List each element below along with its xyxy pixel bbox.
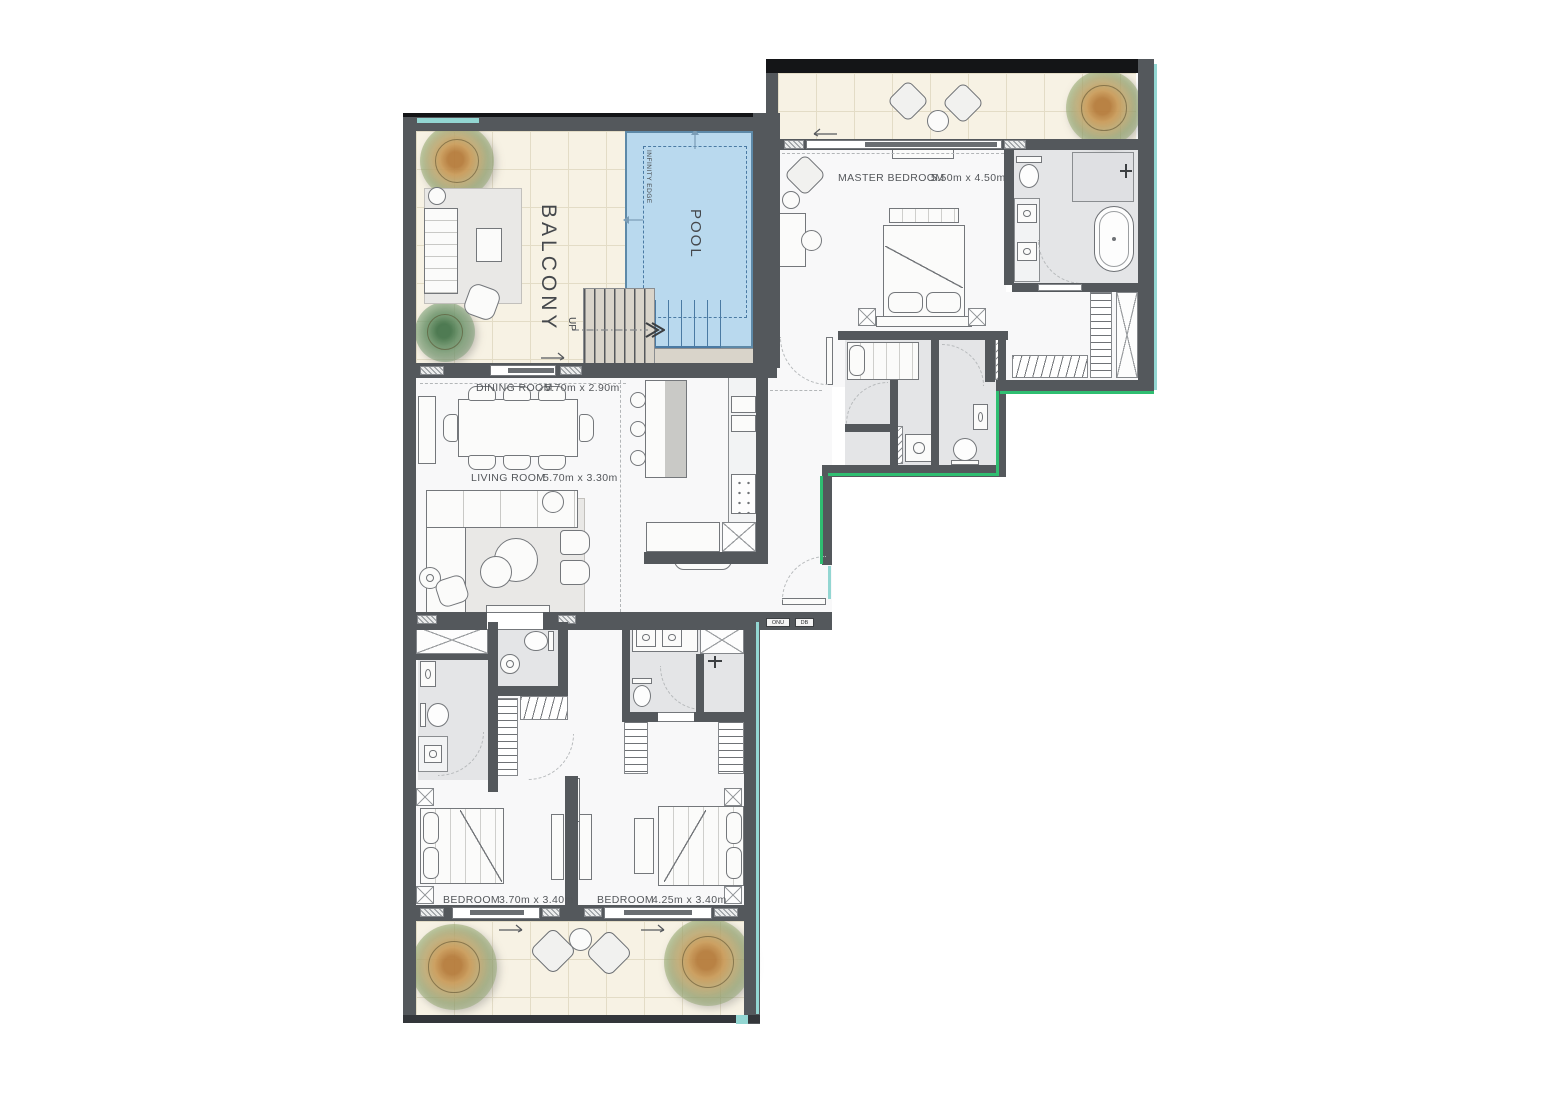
decor-square (416, 788, 434, 806)
door-opening (658, 712, 694, 722)
sink (1017, 204, 1037, 223)
toilet-tank (420, 703, 426, 727)
room-label-balcony: BALCONY (536, 204, 560, 332)
sideboard (418, 396, 436, 464)
utility-box-onu: ONU (766, 618, 790, 627)
wardrobe-rack (718, 714, 744, 774)
wall (998, 340, 1006, 477)
wall (845, 424, 893, 432)
hanging-rack (520, 696, 568, 720)
toilet (524, 631, 548, 651)
sink (662, 628, 682, 647)
armchair (560, 560, 590, 585)
balcony-round-table (927, 110, 949, 132)
decor-square (416, 886, 434, 904)
sliding-panel (624, 910, 692, 915)
wardrobe-rack (496, 698, 518, 776)
wall (756, 368, 768, 556)
utility-box-db: DB (795, 618, 814, 627)
kitchen-cabinet-reserve (722, 522, 756, 552)
window-sill (542, 908, 560, 917)
decor-square (724, 886, 742, 904)
window-sill (714, 908, 738, 917)
pillow (726, 812, 742, 844)
glass-rail (1154, 64, 1157, 390)
glass-wall (820, 476, 823, 564)
glass-rail (756, 622, 759, 1014)
decor-square (724, 788, 742, 806)
room-dims-living: 5.70m x 3.30m (543, 472, 618, 484)
kitchen-island (645, 380, 687, 478)
shower-head-icon (714, 656, 716, 668)
slide-arrow (808, 126, 838, 138)
wall (1138, 59, 1154, 392)
pool-overflow-arrow-left (622, 213, 644, 227)
window-sill (420, 366, 444, 375)
toilet (1019, 164, 1039, 188)
oven (731, 396, 756, 413)
wall (416, 654, 488, 660)
window-sill (784, 140, 804, 149)
balcony-round-table (569, 928, 592, 951)
wall (622, 622, 630, 722)
pillow (423, 812, 439, 844)
wall (985, 335, 995, 382)
desk-chair (801, 230, 822, 251)
kitchen-cabinet (646, 522, 720, 552)
tree (420, 124, 494, 198)
wall (403, 1015, 760, 1023)
ceiling-dash (782, 153, 1004, 154)
wall (753, 113, 780, 368)
wall (696, 654, 704, 712)
hanging-rack (1012, 355, 1088, 378)
room-label-pool: POOL (687, 209, 704, 259)
zone-dash (620, 380, 621, 612)
bench (634, 818, 654, 874)
room-label-master-bedroom: MASTER BEDROOM (838, 172, 945, 184)
toilet-tank (548, 631, 554, 651)
sink (1017, 242, 1037, 261)
room-dims-bedroom-2: 4.25m x 3.40m (652, 894, 727, 906)
wall-basin (420, 661, 436, 687)
wall (403, 363, 777, 378)
window-sill (420, 908, 444, 917)
dining-chair (468, 455, 496, 470)
floor-plan: MASTER BEDROOM 5.50m x 4.50m DINING ROOM… (0, 0, 1556, 1100)
room-dims-dining: 5.70m x 2.90m (545, 382, 620, 394)
room-dims-bedroom-1: 3.70m x 3.40m (499, 894, 574, 906)
sink (636, 628, 656, 647)
balcony-sofa (424, 208, 458, 294)
round-basin (500, 654, 520, 674)
glass-rail (828, 566, 831, 599)
bathtub (1094, 206, 1134, 272)
wall (558, 622, 568, 696)
label-infinity-edge: INFINITY EDGE (645, 150, 652, 204)
room-label-bedroom-2: BEDROOM (597, 894, 654, 906)
washing-machine (905, 434, 933, 462)
toilet-tank (1016, 156, 1042, 163)
wall (644, 552, 768, 564)
pillow (849, 345, 865, 376)
pool-overflow-arrow-up (688, 128, 702, 150)
toilet-tank (632, 678, 652, 684)
bar-stool (630, 392, 646, 408)
window-sill (1004, 140, 1026, 149)
hall-closet (416, 626, 488, 654)
dining-table (458, 399, 578, 457)
slide-arrow (498, 922, 528, 934)
wardrobe-rack (624, 714, 648, 774)
wardrobe-rack (1090, 292, 1112, 378)
room-label-bedroom-1: BEDROOM (443, 894, 500, 906)
shower-head-icon (1125, 164, 1127, 178)
glass-panel (417, 118, 479, 123)
dining-chair (503, 455, 531, 470)
wardrobe-cabinet (1116, 292, 1138, 378)
wall (498, 686, 560, 696)
glass-wall (996, 391, 999, 475)
window-sill (584, 908, 602, 917)
pouf (542, 491, 564, 513)
sink (973, 404, 988, 430)
dining-chair (538, 455, 566, 470)
window-sill (417, 615, 437, 624)
headboard (876, 316, 972, 327)
wall (488, 622, 498, 792)
room-dims-master-bedroom: 5.50m x 4.50m (931, 172, 1006, 184)
oven (731, 415, 756, 432)
wall (822, 476, 832, 565)
slide-arrow (640, 922, 670, 934)
balcony-table (476, 228, 502, 262)
sliding-panel (508, 368, 554, 373)
toilet (427, 703, 449, 727)
wall (1004, 150, 1014, 285)
bedside-panel (551, 814, 564, 880)
stairs-up-arrow (570, 320, 665, 340)
bed-fold-line (664, 810, 706, 882)
utility-label-onu: ONU (772, 620, 784, 626)
ceiling-dash (770, 390, 822, 391)
side-table (782, 191, 800, 209)
pillow (888, 292, 923, 313)
room-label-living: LIVING ROOM (471, 472, 545, 484)
tree (1066, 70, 1142, 146)
wall (403, 117, 416, 1023)
label-up: UP (566, 317, 577, 331)
utility-label-db: DB (801, 620, 809, 626)
dining-chair (579, 414, 594, 442)
slide-arrow (540, 350, 570, 362)
bathroom-cabinet (700, 626, 744, 654)
bar-stool (630, 450, 646, 466)
pillow (726, 847, 742, 879)
sliding-panel (865, 142, 997, 147)
pillow (423, 847, 439, 879)
glass-rail (736, 1015, 748, 1024)
wall (766, 59, 1144, 73)
bed-fold-line (460, 810, 502, 882)
bedside-panel (579, 814, 592, 880)
pillow (926, 292, 961, 313)
coffee-table-small (480, 556, 512, 588)
toilet (953, 438, 977, 461)
toilet (633, 685, 651, 707)
tree (664, 918, 752, 1006)
tree (411, 924, 497, 1010)
window-sill (560, 366, 582, 375)
door-sill (1038, 284, 1082, 291)
side-stool (428, 187, 446, 205)
sliding-panel (470, 910, 524, 915)
wall (838, 331, 1008, 340)
armchair (560, 530, 590, 555)
cooktop (731, 474, 756, 514)
glass-wall (1000, 391, 1154, 394)
bed-bench (889, 208, 959, 223)
room-label-dining: DINING ROOM (476, 382, 553, 394)
dining-chair (443, 414, 458, 442)
bed-fold-line (885, 246, 963, 288)
bar-stool (630, 421, 646, 437)
glass-wall (828, 473, 999, 476)
wall (931, 340, 939, 466)
nightstand (968, 308, 986, 326)
nightstand (858, 308, 876, 326)
